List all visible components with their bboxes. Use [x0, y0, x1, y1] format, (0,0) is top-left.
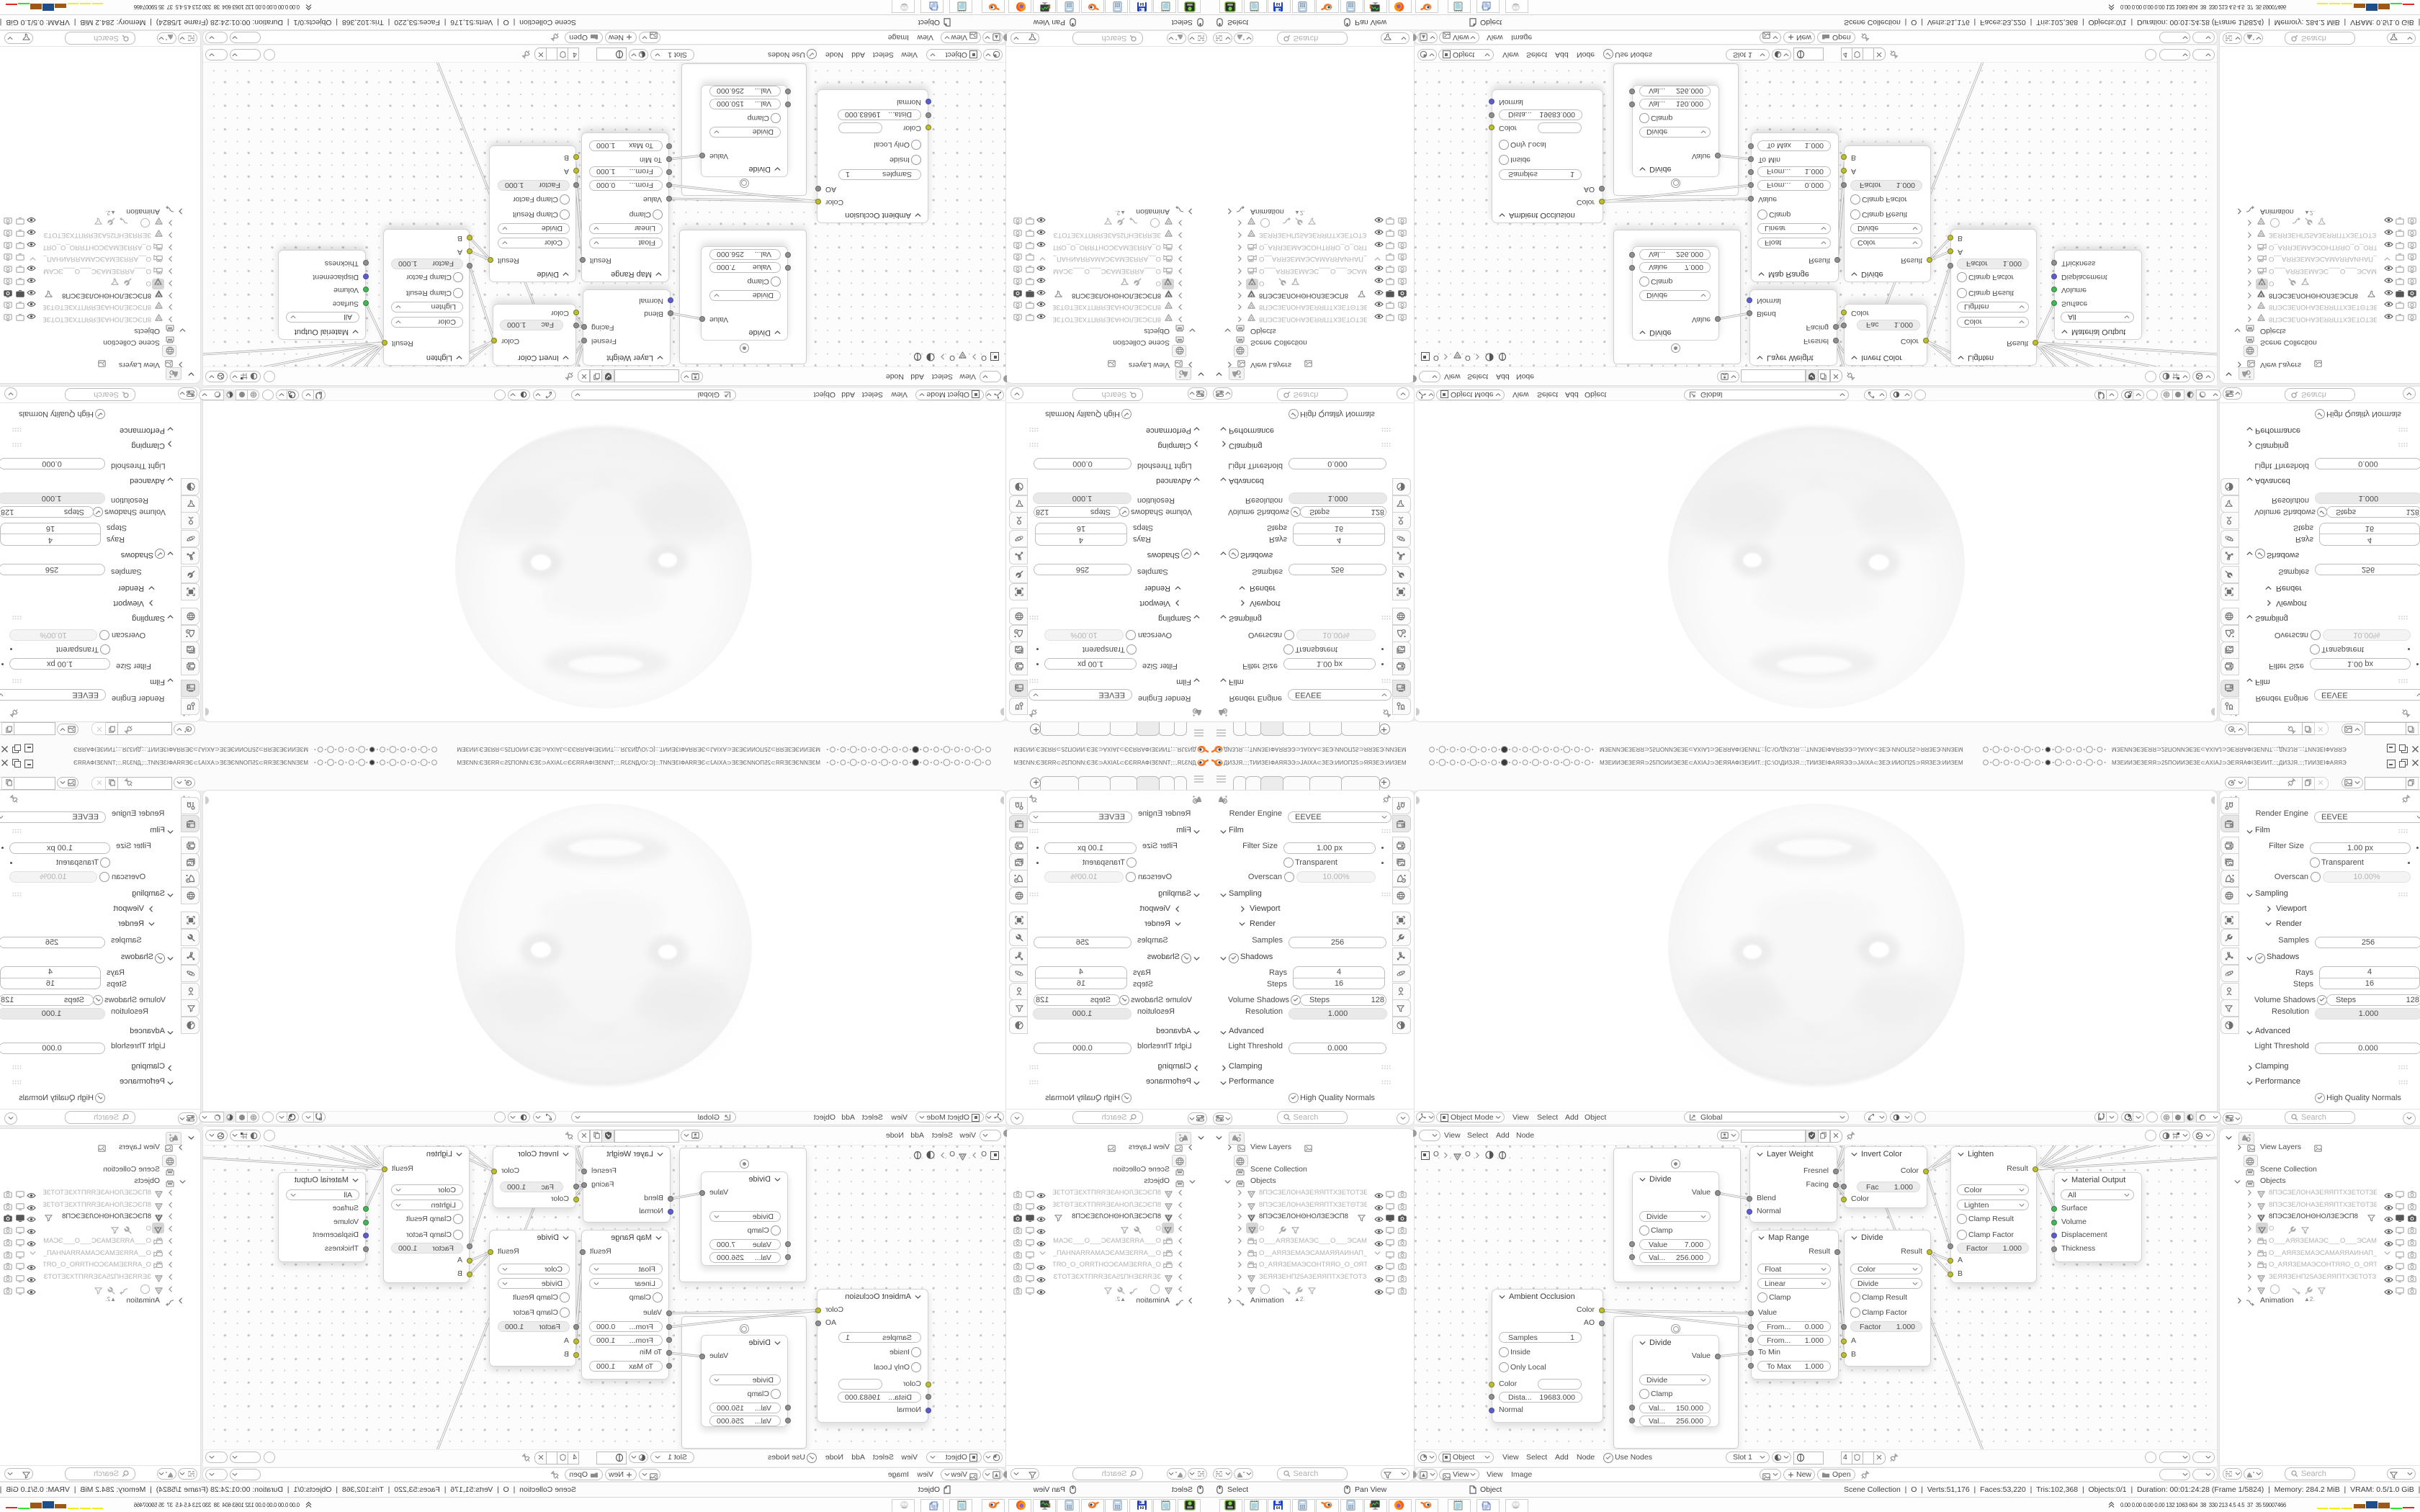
svg-text:64: 64 — [1276, 1506, 1281, 1511]
